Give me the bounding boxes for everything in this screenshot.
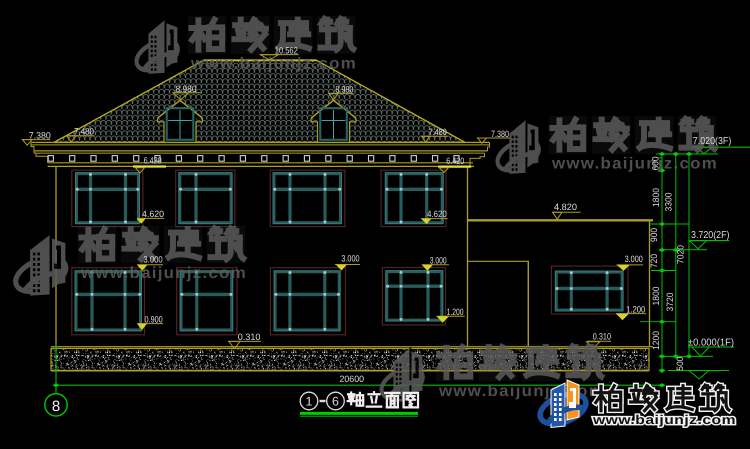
svg-text:8.980: 8.980 <box>176 84 197 94</box>
svg-text:7.020(3F): 7.020(3F) <box>693 136 732 147</box>
svg-text:7.480: 7.480 <box>74 127 94 137</box>
svg-text:7.380: 7.380 <box>29 130 51 140</box>
svg-text:3.000: 3.000 <box>341 253 359 263</box>
svg-text:7.480: 7.480 <box>429 127 447 137</box>
svg-text:www.baijunjz.com: www.baijunjz.com <box>190 56 357 73</box>
svg-text:6.420: 6.420 <box>446 156 464 166</box>
svg-text:500: 500 <box>675 357 685 371</box>
svg-text:3.720(2F): 3.720(2F) <box>691 230 730 241</box>
svg-text:www.baijunjz.com: www.baijunjz.com <box>80 265 247 282</box>
svg-text:www.baijunjz.com: www.baijunjz.com <box>551 156 718 173</box>
svg-text:7.380: 7.380 <box>491 129 509 139</box>
svg-text:6: 6 <box>332 395 339 409</box>
svg-text:3300: 3300 <box>663 193 673 212</box>
svg-text:7020: 7020 <box>676 245 686 264</box>
svg-text:600: 600 <box>651 157 661 171</box>
svg-text:0.310: 0.310 <box>238 332 261 342</box>
svg-text:6.420: 6.420 <box>144 156 162 166</box>
svg-text:1200: 1200 <box>651 331 661 350</box>
svg-text:900: 900 <box>649 228 659 242</box>
svg-text:4.820: 4.820 <box>554 202 577 212</box>
svg-text:0.310: 0.310 <box>593 332 611 342</box>
svg-text:3.000: 3.000 <box>625 254 643 264</box>
svg-text:3720: 3720 <box>665 293 675 312</box>
svg-text:4.620: 4.620 <box>142 209 164 219</box>
svg-text:1800: 1800 <box>651 188 661 207</box>
svg-text:20600: 20600 <box>340 374 365 384</box>
svg-text:1: 1 <box>306 395 313 409</box>
svg-text:1.200: 1.200 <box>626 304 645 314</box>
svg-text:0.900: 0.900 <box>145 314 163 324</box>
svg-text:3.000: 3.000 <box>143 255 162 265</box>
svg-text:1.200: 1.200 <box>447 307 464 317</box>
svg-text:8.980: 8.980 <box>335 84 353 94</box>
svg-text:4.620: 4.620 <box>427 209 447 219</box>
svg-text:10.562: 10.562 <box>275 45 298 55</box>
svg-text:1800: 1800 <box>651 287 661 306</box>
svg-text:3.000: 3.000 <box>430 256 447 266</box>
svg-text:8: 8 <box>52 398 60 415</box>
svg-text:www.baijunjz.com: www.baijunjz.com <box>592 412 736 427</box>
svg-text:720: 720 <box>649 254 659 268</box>
svg-text:±0.000(1F): ±0.000(1F) <box>688 338 734 349</box>
